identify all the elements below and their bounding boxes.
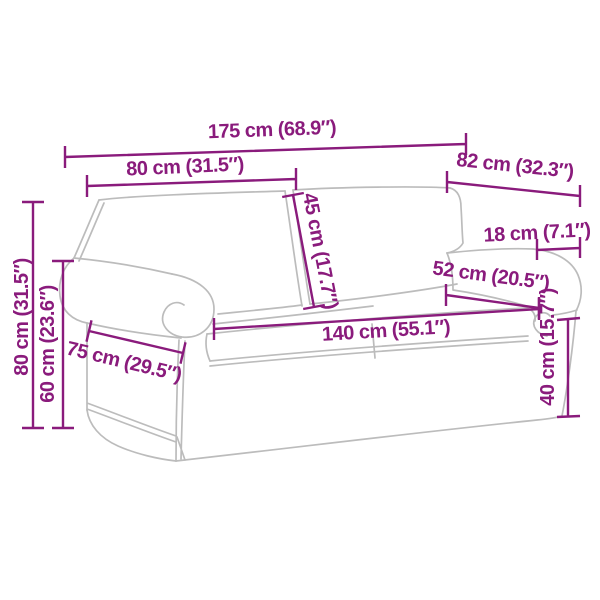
sofa-back-left-frame-line [74, 200, 104, 261]
dim-total-width-label: 175 cm (68.9″) [208, 117, 337, 143]
dim-depth-label: 82 cm (32.3″) [455, 149, 574, 183]
dim-seat-height-line [557, 318, 580, 417]
dim-armrest-depth-label: 75 cm (29.5″) [64, 338, 183, 387]
dimension-annotations: 175 cm (68.9″) 80 cm (31.5″) 82 cm (32.3… [11, 117, 591, 428]
sofa-right-arm-top-line [447, 249, 533, 253]
sofa-seat-left-edge-line [206, 334, 210, 361]
dim-seat-height-label: 40 cm (15.7″) [537, 288, 559, 406]
dimension-diagram: 175 cm (68.9″) 80 cm (31.5″) 82 cm (32.3… [0, 0, 600, 600]
sofa-bottom-left-curve-line [87, 410, 176, 461]
sofa-left-arm-roll-top-line [74, 258, 172, 274]
sofa-back-cushion-left-top-line [99, 191, 285, 200]
sofa-left-arm-scroll-line [163, 274, 214, 337]
dim-seat-depth-label: 52 cm (20.5″) [431, 257, 550, 294]
sofa-back-right-edge-line [447, 188, 463, 253]
sofa-back-cushion-right-top-line [293, 187, 450, 190]
dim-backrest-width-label: 80 cm (31.5″) [126, 153, 244, 180]
dim-armrest-width-label: 18 cm (7.1″) [483, 219, 591, 247]
sofa-left-arm-front-corner-lines [176, 340, 185, 461]
dim-armrest-height-label: 60 cm (23.6″) [37, 285, 59, 403]
dim-total-height-label: 80 cm (31.5″) [11, 258, 33, 376]
sofa-skirt-bottom-line [176, 416, 562, 461]
diagram-canvas: 175 cm (68.9″) 80 cm (31.5″) 82 cm (32.3… [0, 0, 600, 600]
